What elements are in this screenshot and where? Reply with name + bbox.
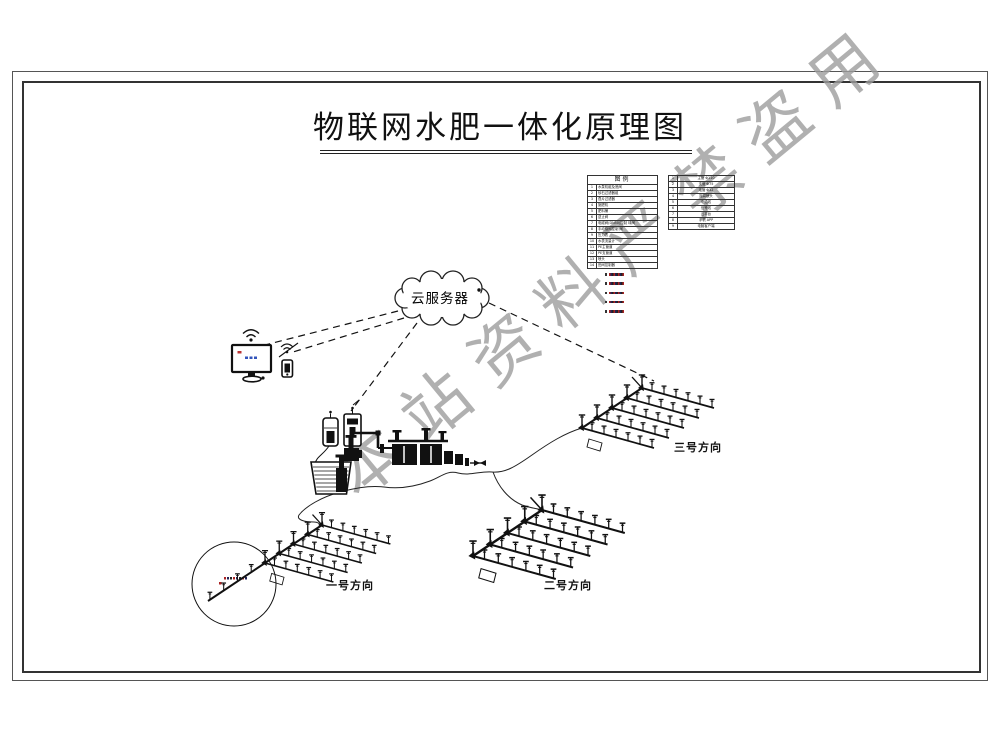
- legend-row: 5电缆线: [669, 199, 734, 205]
- cloud-dot: [477, 288, 480, 291]
- phone-icon: [279, 343, 298, 377]
- legend-row-text: 信号线: [678, 206, 734, 211]
- note-line: [609, 301, 624, 304]
- legend-row-text: 水表流量计: [597, 239, 657, 244]
- legend-row: 13喷头: [588, 256, 657, 262]
- legend-row-text: 电脑客户端: [678, 224, 734, 229]
- legend-row-number: 9: [588, 233, 597, 238]
- note-dot: [605, 310, 607, 313]
- drawing-sheet: 本站资料严禁盗用 物联网水肥一体化原理图: [0, 0, 1000, 750]
- legend-row: 11PE主管道: [588, 244, 657, 250]
- note-dot: [605, 282, 607, 285]
- legend-left-rows: 1水泵机组及底阀2砂石过滤器组3叠片过滤器4施肥机5肥料桶6逆止阀7电磁阀(DN…: [588, 185, 657, 268]
- legend-row-text: 施肥机: [597, 203, 657, 208]
- schematic-drawing: 云服务器: [0, 0, 1000, 750]
- legend-row-text: 电缆线: [678, 200, 734, 205]
- legend-row: 6逆止阀: [588, 214, 657, 220]
- note-line: [609, 273, 624, 276]
- legend-row-number: 7: [588, 221, 597, 226]
- fertigation-station: [311, 400, 486, 494]
- legend-row: 12PE支管道: [588, 250, 657, 256]
- legend-row-number: 3: [669, 188, 678, 193]
- note-line: [609, 310, 624, 313]
- legend-row-number: 14: [588, 263, 597, 268]
- link-cloud-station: [351, 323, 417, 411]
- legend-row-number: 8: [588, 227, 597, 232]
- legend-row-number: 12: [588, 251, 597, 256]
- legend-row: 9压力表: [588, 232, 657, 238]
- legend-row: 6信号线: [669, 205, 734, 211]
- legend-row-number: 3: [588, 197, 597, 202]
- field-label-3: 三号方向: [674, 439, 722, 455]
- legend-row-text: 砂石过滤器组: [597, 191, 657, 196]
- legend-row-number: 6: [588, 215, 597, 220]
- note-line: [609, 282, 624, 285]
- legend-row-number: 1: [588, 185, 597, 190]
- legend-row: 2砂石过滤器组: [588, 190, 657, 196]
- note-dot: [605, 273, 607, 276]
- legend-row: 1主管 Φ110: [669, 176, 734, 181]
- legend-row-text: 压力表: [597, 233, 657, 238]
- legend-row-number: 2: [669, 182, 678, 187]
- legend-row-text: PE主管道: [597, 245, 657, 250]
- legend-row-number: 2: [588, 191, 597, 196]
- legend-table-left: 图例 1水泵机组及底阀2砂石过滤器组3叠片过滤器4施肥机5肥料桶6逆止阀7电磁阀…: [587, 175, 658, 269]
- legend-row: 2支管 Φ75: [669, 181, 734, 187]
- legend-row: 8手动蝶阀控制 阀: [588, 226, 657, 232]
- legend-row: 4施肥机: [588, 202, 657, 208]
- cloud-server: 云服务器: [395, 271, 489, 325]
- legend-row-text: 喷头: [597, 257, 657, 262]
- legend-row-number: 4: [669, 194, 678, 199]
- legend-row-number: 9: [669, 224, 678, 229]
- legend-row-number: 11: [588, 245, 597, 250]
- legend-right-rows: 1主管 Φ1102支管 Φ753毛管 Φ324摇臂喷头5电缆线6信号线7云平台8…: [669, 176, 734, 229]
- monitor-icon: [232, 330, 271, 382]
- legend-row-number: 5: [669, 200, 678, 205]
- legend-row-text: 毛管 Φ32: [678, 188, 734, 193]
- legend-row-text: 云平台: [678, 212, 734, 217]
- legend-row-text: 逆止阀: [597, 215, 657, 220]
- legend-row: 1水泵机组及底阀: [588, 185, 657, 190]
- legend-row: 4摇臂喷头: [669, 193, 734, 199]
- legend-row-text: 支管 Φ75: [678, 182, 734, 187]
- fertilizer-tanks: [323, 400, 361, 446]
- cloud-label: 云服务器: [411, 291, 469, 307]
- legend-row-number: 10: [588, 239, 597, 244]
- legend-row-text: 田间控制器: [597, 263, 657, 268]
- legend-row: 3毛管 Φ32: [669, 187, 734, 193]
- wifi-icon: [249, 338, 252, 341]
- legend-row-text: 手动蝶阀控制 阀: [597, 227, 657, 232]
- branch-pipe-field2: [493, 472, 543, 510]
- legend-row: 9电脑客户端: [669, 223, 734, 229]
- legend-row: 7电磁阀(DN50)控制 球阀: [588, 220, 657, 226]
- legend-row-text: 摇臂喷头: [678, 194, 734, 199]
- legend-row-text: 水泵机组及底阀: [597, 185, 657, 190]
- field-label-2: 二号方向: [544, 577, 592, 593]
- legend-row-number: 8: [669, 218, 678, 223]
- legend-row-text: 叠片过滤器: [597, 197, 657, 202]
- branch-pipe-field1: [298, 492, 340, 526]
- legend-row: 5肥料桶: [588, 208, 657, 214]
- legend-row: 10水表流量计: [588, 238, 657, 244]
- legend-row-number: 4: [588, 203, 597, 208]
- legend-row-text: 肥料桶: [597, 209, 657, 214]
- legend-row: 14田间控制器: [588, 262, 657, 268]
- note-line: [609, 292, 624, 295]
- legend-row-number: 1: [669, 176, 678, 181]
- filter-station: [388, 428, 486, 466]
- legend-row-text: 手机 APP: [678, 218, 734, 223]
- legend-header: 图例: [588, 176, 657, 185]
- field-label-1: 一号方向: [326, 577, 374, 593]
- legend-row: 3叠片过滤器: [588, 196, 657, 202]
- legend-row: 7云平台: [669, 211, 734, 217]
- legend-row-number: 13: [588, 257, 597, 262]
- legend-row-text: 主管 Φ110: [678, 176, 734, 181]
- link-cloud-field3: [489, 303, 654, 381]
- legend-table-right: 1主管 Φ1102支管 Φ753毛管 Φ324摇臂喷头5电缆线6信号线7云平台8…: [668, 175, 735, 230]
- sprinkler-fields: [208, 375, 715, 601]
- legend-row-number: 5: [588, 209, 597, 214]
- legend-row: 8手机 APP: [669, 217, 734, 223]
- legend-row-text: 电磁阀(DN50)控制 球阀: [597, 221, 657, 226]
- field-2: [468, 495, 625, 582]
- note-dot: [605, 292, 607, 295]
- note-dot: [605, 301, 607, 304]
- legend-row-number: 7: [669, 212, 678, 217]
- legend-row-text: PE支管道: [597, 251, 657, 256]
- legend-row-number: 6: [669, 206, 678, 211]
